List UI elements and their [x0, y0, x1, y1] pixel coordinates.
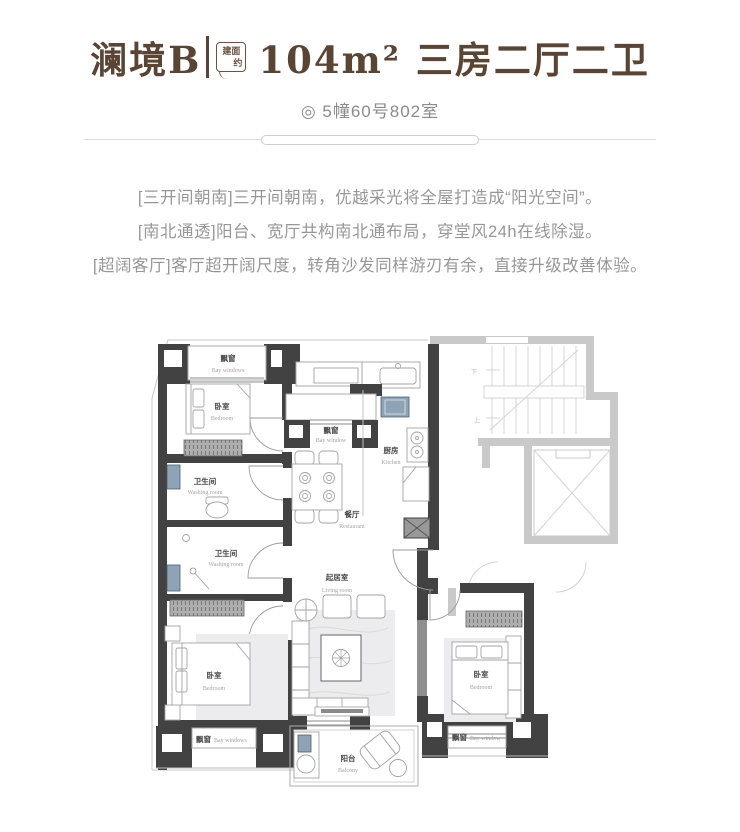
svg-text:飘窗: 飘窗 [221, 353, 236, 363]
svg-text:厨房: 厨房 [384, 445, 399, 455]
svg-text:Bedroom: Bedroom [211, 416, 234, 422]
area-badge-line2: 约 [220, 57, 242, 69]
wardrobe-sw [170, 600, 244, 616]
label-living: 起居室 Living room [322, 572, 352, 594]
label-bay-mid: 飘窗 Bay window [316, 425, 347, 444]
svg-text:Balcony: Balcony [338, 768, 358, 774]
flyer-page: 澜境B 建面 约 104m² 三房二厅二卫 ◎ 5幢60号802室 [三开间朝南… [0, 0, 740, 832]
dining-set [292, 451, 342, 523]
floor-plan: 下 上 [142, 332, 638, 818]
svg-text:Bay window: Bay window [316, 438, 347, 444]
common-core: 下 上 [430, 336, 618, 616]
elevator [534, 450, 610, 536]
selling-points: [三开间朝南]三开间朝南，优越采光将全屋打造成“阳光空间”。 [南北通透]阳台、… [0, 181, 740, 283]
svg-text:Bedroom: Bedroom [203, 686, 226, 692]
svg-text:Bedroom: Bedroom [470, 685, 493, 691]
label-bath-upper: 卫生间 Washing room [187, 476, 222, 496]
svg-text:餐厅: 餐厅 [344, 509, 360, 519]
svg-text:Kitchen: Kitchen [382, 460, 401, 466]
label-kitchen: 厨房 Kitchen [382, 445, 401, 466]
stairs-down-label: 下 [471, 368, 478, 376]
svg-text:起居室: 起居室 [325, 572, 349, 582]
svg-text:Bay window: Bay window [470, 736, 501, 742]
title-row: 澜境B 建面 约 104m² 三房二厅二卫 [0, 30, 740, 84]
label-balcony: 阳台 Balcony [338, 753, 358, 774]
label-bath-lower: 卫生间 Washing room [208, 548, 243, 568]
svg-text:Bay windows: Bay windows [212, 368, 245, 374]
svg-text:Washing room: Washing room [187, 490, 222, 496]
svg-text:Living room: Living room [322, 588, 352, 594]
selling-point-3: [超阔客厅]客厅超开阔尺度，转角沙发同样游刃有余，直接升级改善体验。 [0, 249, 740, 283]
unit-subtitle: ◎ 5幢60号802室 [0, 97, 740, 122]
svg-text:卧室: 卧室 [474, 669, 489, 679]
selling-point-2: [南北通透]阳台、宽厅共构南北通布局，穿堂风24h在线除湿。 [0, 215, 740, 249]
svg-text:Restaurant: Restaurant [339, 524, 365, 530]
page-title: 104m² 三房二厅二卫 [258, 30, 649, 84]
label-dining: 餐厅 Restaurant [339, 509, 365, 530]
bed-sw [165, 626, 288, 720]
svg-text:卫生间: 卫生间 [215, 548, 238, 558]
project-name: 澜境B [90, 30, 201, 84]
bath-lower-fixtures [167, 535, 209, 592]
svg-text:阳台: 阳台 [341, 753, 356, 763]
svg-text:Washing room: Washing room [208, 562, 243, 568]
living-furniture [292, 595, 395, 716]
svg-text:卧室: 卧室 [207, 670, 222, 680]
svg-text:卧室: 卧室 [215, 401, 230, 411]
title-divider-bar [206, 36, 209, 78]
wardrobe-nw [184, 440, 242, 456]
selling-point-1: [三开间朝南]三开间朝南，优越采光将全屋打造成“阳光空间”。 [0, 181, 740, 215]
svg-text:Bay windows: Bay windows [214, 738, 247, 744]
svg-text:飘窗: 飘窗 [196, 734, 211, 744]
header: 澜境B 建面 约 104m² 三房二厅二卫 ◎ 5幢60号802室 [0, 0, 740, 145]
area-badge-line1: 建面 [220, 45, 242, 57]
svg-text:飘窗: 飘窗 [324, 425, 339, 435]
stairs-up-label: 上 [474, 415, 481, 424]
svg-text:卫生间: 卫生间 [194, 476, 217, 486]
stairs [484, 346, 584, 434]
area-badge: 建面 约 [216, 42, 246, 72]
header-divider [84, 135, 656, 145]
divider-capsule [261, 135, 479, 145]
bed-se [444, 611, 522, 722]
svg-text:飘窗: 飘窗 [452, 732, 467, 742]
